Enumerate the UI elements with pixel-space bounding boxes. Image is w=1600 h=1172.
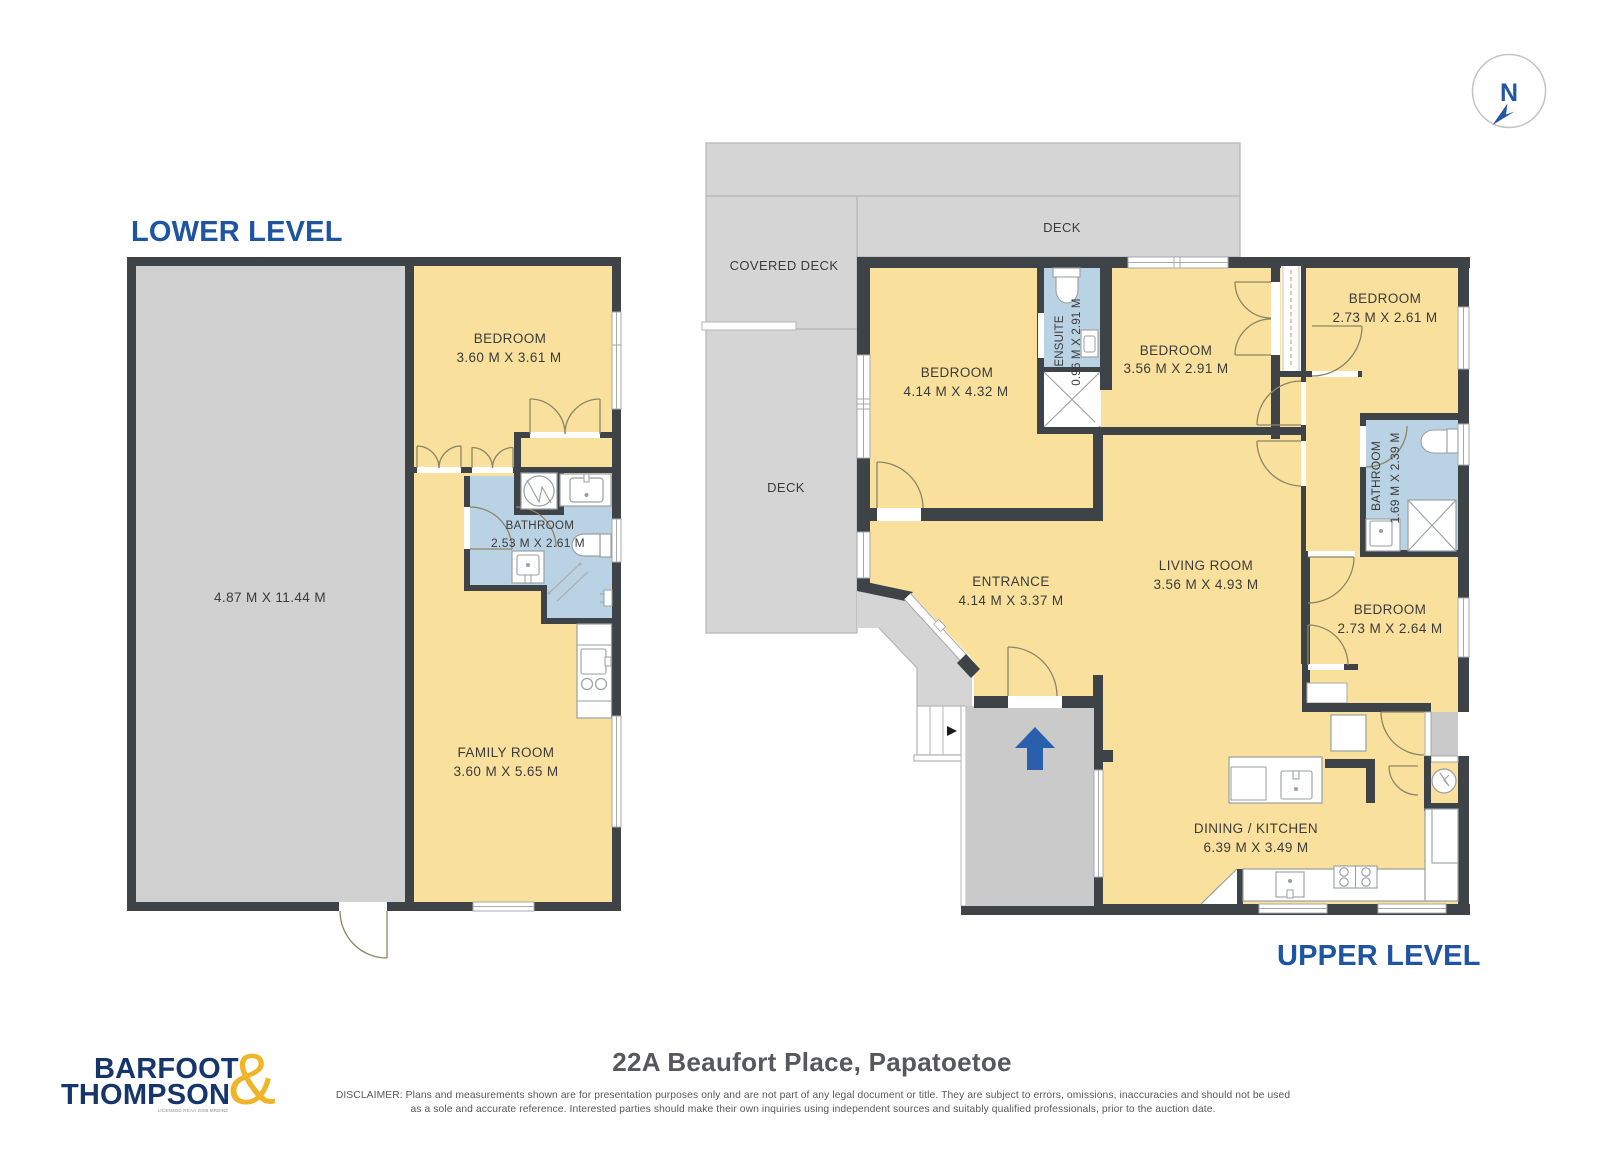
svg-text:LIVING ROOM: LIVING ROOM — [1159, 558, 1253, 573]
svg-text:DECK: DECK — [767, 480, 805, 495]
svg-text:BEDROOM: BEDROOM — [1349, 291, 1422, 306]
svg-text:DECK: DECK — [1043, 220, 1081, 235]
svg-text:BEDROOM: BEDROOM — [921, 365, 994, 380]
svg-text:BEDROOM: BEDROOM — [1140, 343, 1213, 358]
svg-text:N: N — [1500, 79, 1518, 107]
svg-text:DISCLAIMER: Plans and measurem: DISCLAIMER: Plans and measurements shown… — [336, 1090, 1291, 1101]
svg-text:LOWER LEVEL: LOWER LEVEL — [131, 216, 343, 248]
svg-text:UPPER LEVEL: UPPER LEVEL — [1277, 940, 1481, 972]
svg-text:2.73 M X 2.61 M: 2.73 M X 2.61 M — [1332, 310, 1437, 325]
svg-text:22A Beaufort Place, Papatoetoe: 22A Beaufort Place, Papatoetoe — [612, 1047, 1012, 1077]
svg-text:4.87 M X 11.44 M: 4.87 M X 11.44 M — [214, 590, 326, 605]
svg-text:&: & — [228, 1040, 276, 1120]
svg-text:6.39 M X 3.49 M: 6.39 M X 3.49 M — [1203, 840, 1308, 855]
svg-text:3.60 M X 3.61 M: 3.60 M X 3.61 M — [456, 350, 561, 365]
svg-text:as a sole and accurate referen: as a sole and accurate reference. Intere… — [410, 1104, 1215, 1115]
svg-text:2.53 M X 2.61 M: 2.53 M X 2.61 M — [491, 536, 585, 550]
svg-text:FAMILY ROOM: FAMILY ROOM — [458, 745, 555, 760]
svg-text:BATHROOM: BATHROOM — [506, 520, 575, 532]
svg-text:3.56 M X 4.93 M: 3.56 M X 4.93 M — [1153, 577, 1258, 592]
svg-text:3.56 M X 2.91 M: 3.56 M X 2.91 M — [1123, 361, 1228, 376]
svg-text:4.14 M X 4.32 M: 4.14 M X 4.32 M — [903, 384, 1008, 399]
svg-text:BEDROOM: BEDROOM — [1354, 602, 1427, 617]
svg-text:THOMPSON: THOMPSON — [61, 1079, 230, 1111]
svg-text:ENSUITE: ENSUITE — [1054, 315, 1066, 366]
svg-text:4.14 M X 3.37 M: 4.14 M X 3.37 M — [958, 593, 1063, 608]
svg-text:0.96 M X 2.91 M: 0.96 M X 2.91 M — [1071, 298, 1083, 385]
svg-text:2.73 M X 2.64 M: 2.73 M X 2.64 M — [1337, 621, 1442, 636]
svg-text:BATHROOM: BATHROOM — [1369, 441, 1383, 511]
svg-text:ENTRANCE: ENTRANCE — [972, 574, 1049, 589]
svg-text:LICENSED REAA 2008 MREINZ: LICENSED REAA 2008 MREINZ — [158, 1108, 229, 1113]
svg-text:BEDROOM: BEDROOM — [474, 331, 547, 346]
svg-text:DINING / KITCHEN: DINING / KITCHEN — [1194, 821, 1318, 836]
svg-text:3.60 M X 5.65 M: 3.60 M X 5.65 M — [453, 764, 558, 779]
svg-text:1.69 M X 2.39 M: 1.69 M X 2.39 M — [1388, 432, 1402, 523]
svg-text:COVERED DECK: COVERED DECK — [730, 258, 839, 273]
